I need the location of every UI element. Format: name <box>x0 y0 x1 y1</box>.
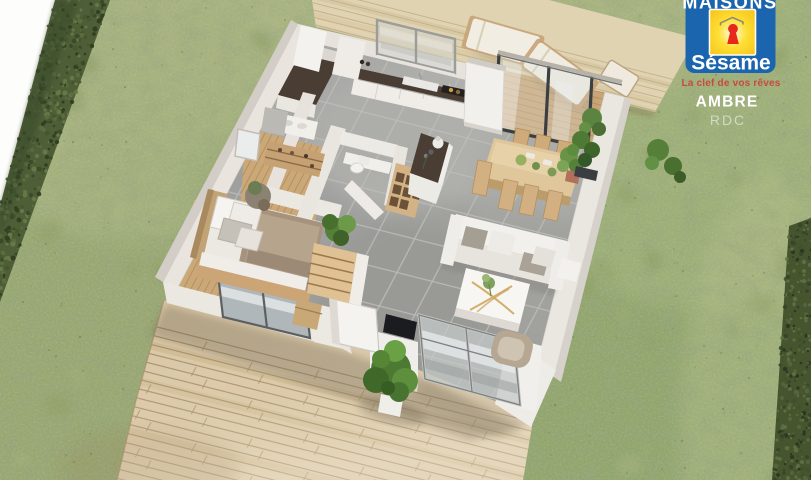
svg-text:La clef de vos rêves: La clef de vos rêves <box>681 78 780 89</box>
svg-text:Sésame: Sésame <box>691 52 770 75</box>
svg-text:RDC: RDC <box>710 112 746 128</box>
svg-text:AMBRE: AMBRE <box>696 94 759 111</box>
